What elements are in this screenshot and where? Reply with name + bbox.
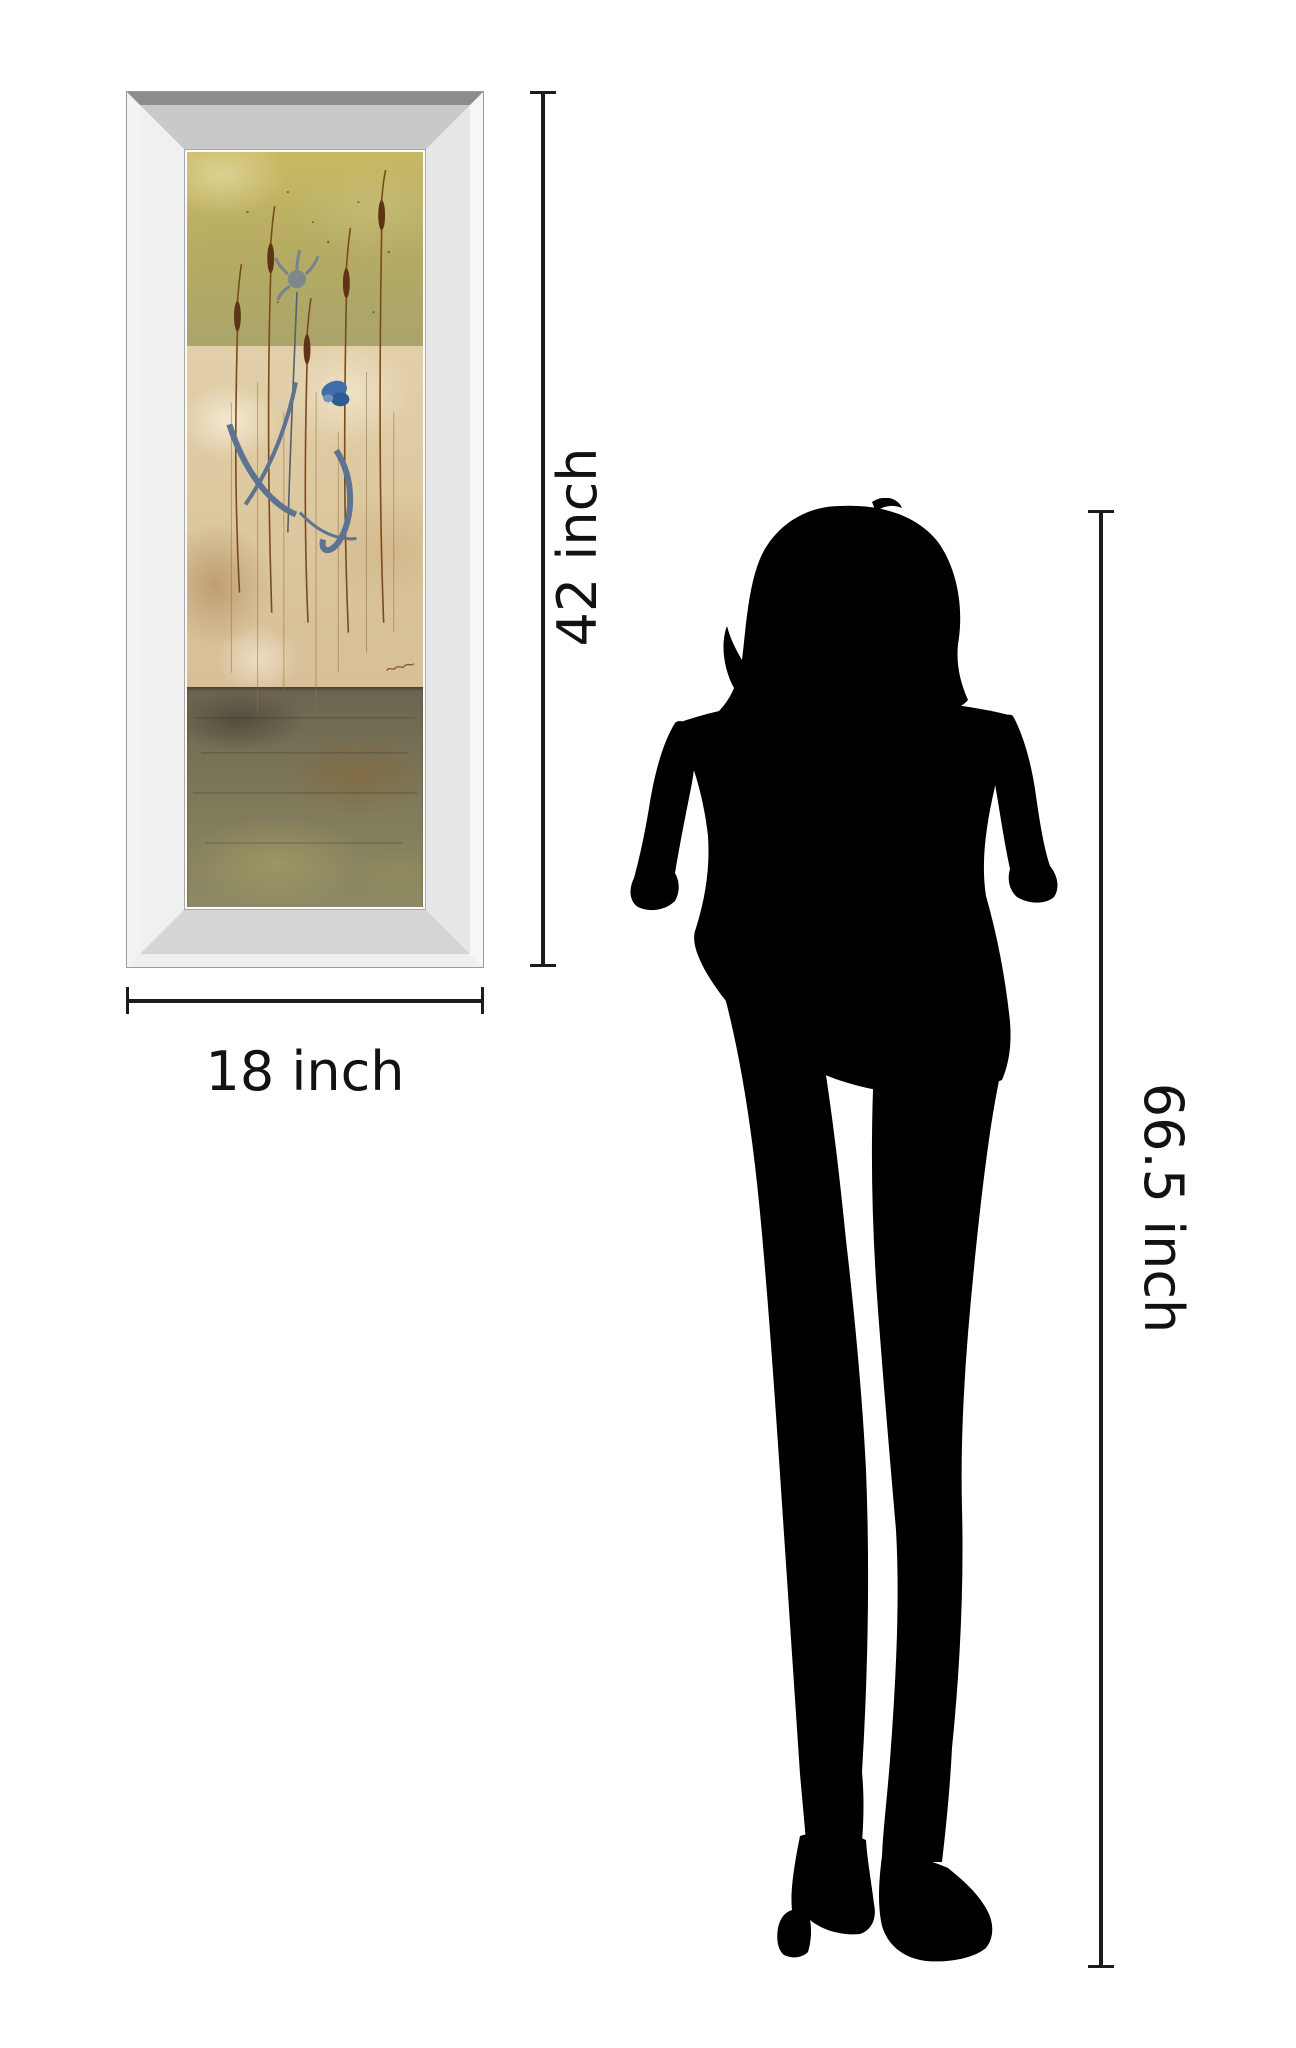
cattail-stems [236,170,386,633]
art-width-label: 18 inch [205,1045,404,1099]
ground-streaks [193,718,417,843]
art-height-top-cap [530,91,556,94]
size-guide-diagram: 42 inch 18 inch 66.5 inch [0,0,1296,2048]
artist-signature [387,664,414,671]
paint-drips [231,372,393,712]
gray-blue-flower [276,250,318,532]
mirror-framed-artwork [127,92,483,967]
person-height-bottom-cap [1088,1965,1114,1968]
art-height-bottom-cap [530,964,556,967]
art-width-right-cap [481,987,484,1014]
person-height-label: 66.5 inch [1136,1083,1190,1334]
cattail-heads [234,200,385,364]
woman-silhouette [630,498,1080,1973]
person-height-dimension-line [1099,512,1103,1968]
art-width-left-cap [126,987,129,1014]
painting-flora-graphic [187,152,423,907]
painting [187,152,423,907]
person-height-top-cap [1088,510,1114,513]
art-width-dimension-line [128,999,482,1003]
art-height-label: 42 inch [551,447,605,646]
art-height-dimension-line [541,93,545,967]
